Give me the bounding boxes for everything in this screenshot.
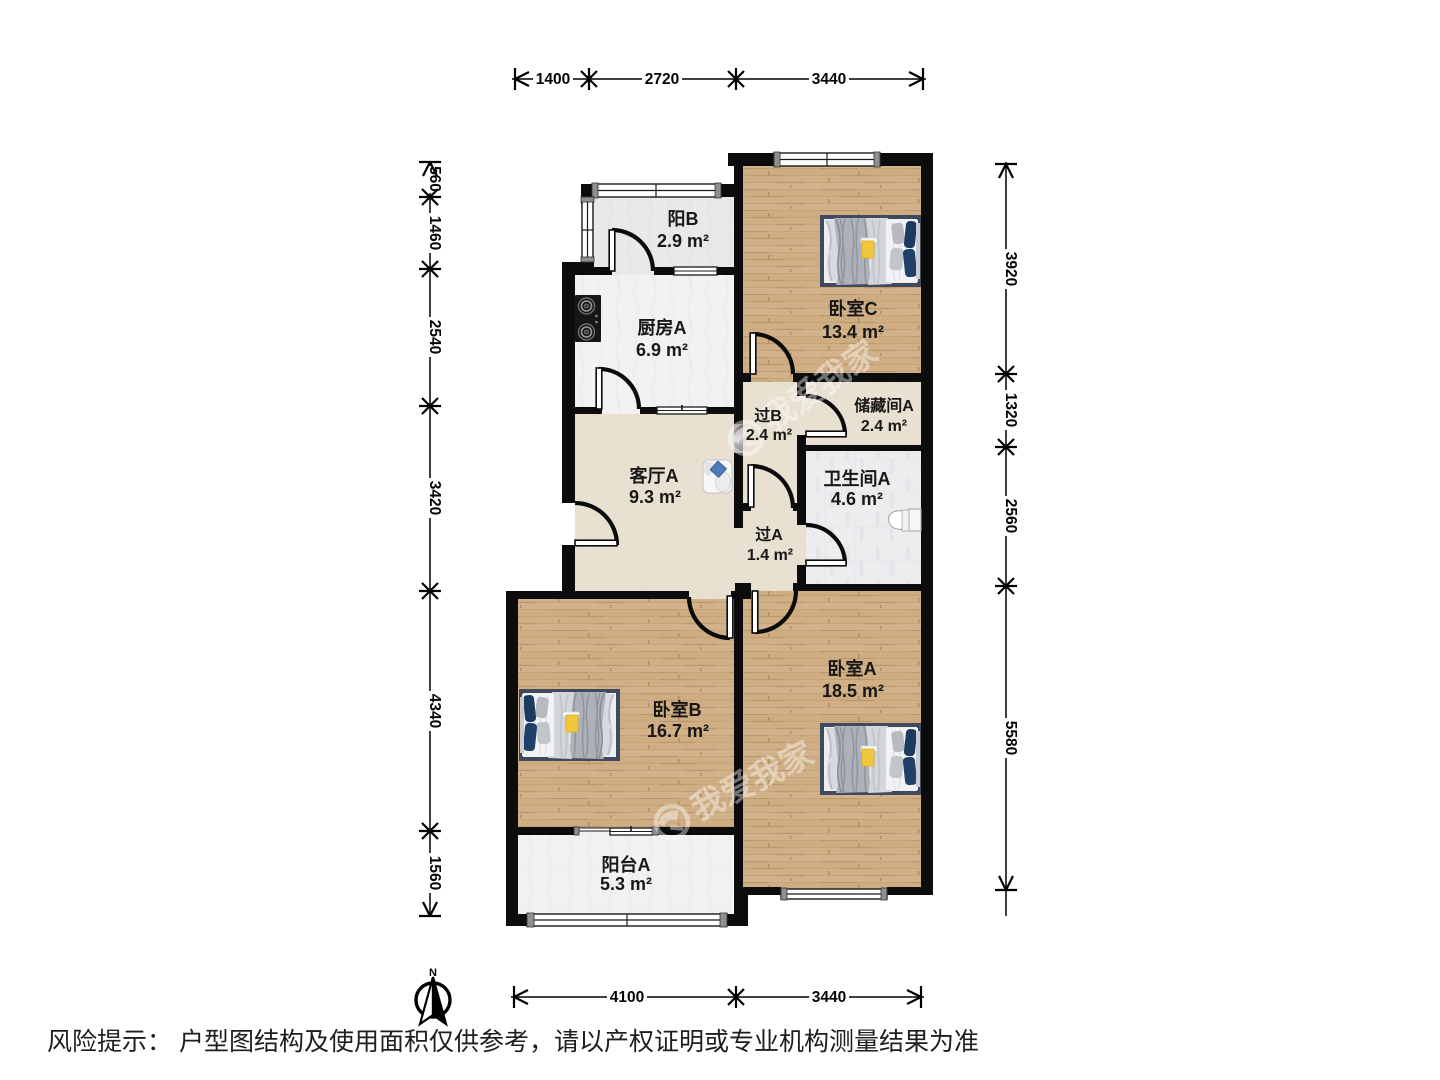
svg-text:阳B: 阳B <box>668 209 699 229</box>
svg-text:过B: 过B <box>754 406 782 425</box>
svg-text:1400: 1400 <box>536 71 570 88</box>
svg-text:卧室C: 卧室C <box>829 298 878 319</box>
svg-text:1.4 m²: 1.4 m² <box>747 547 793 564</box>
svg-text:卫生间A: 卫生间A <box>824 468 891 489</box>
svg-text:储藏间A: 储藏间A <box>853 396 914 415</box>
svg-text:1560: 1560 <box>426 856 443 890</box>
svg-text:4340: 4340 <box>426 694 443 728</box>
svg-text:6.9 m²: 6.9 m² <box>636 340 688 360</box>
svg-text:1460: 1460 <box>426 216 443 250</box>
svg-text:风险提示： 户型图结构及使用面积仅供参考，请以产权证明或专业: 风险提示： 户型图结构及使用面积仅供参考，请以产权证明或专业机构测量结果为准 <box>47 1028 979 1056</box>
svg-text:阳台A: 阳台A <box>602 854 651 875</box>
svg-text:1320: 1320 <box>1002 393 1019 427</box>
svg-text:13.4 m²: 13.4 m² <box>822 322 884 342</box>
svg-text:2.9 m²: 2.9 m² <box>657 231 709 251</box>
svg-text:卧室B: 卧室B <box>653 699 702 720</box>
svg-text:卧室A: 卧室A <box>828 658 877 679</box>
svg-text:2540: 2540 <box>426 320 443 354</box>
svg-text:客厅A: 客厅A <box>630 465 679 486</box>
svg-text:16.7 m²: 16.7 m² <box>647 721 709 741</box>
svg-text:4100: 4100 <box>610 989 644 1006</box>
svg-text:4.6 m²: 4.6 m² <box>831 489 883 509</box>
svg-text:2.4 m²: 2.4 m² <box>746 427 792 444</box>
svg-text:2.4 m²: 2.4 m² <box>861 418 907 435</box>
svg-text:9.3 m²: 9.3 m² <box>629 487 681 507</box>
svg-text:2720: 2720 <box>645 71 679 88</box>
svg-text:3440: 3440 <box>812 989 846 1006</box>
svg-text:5580: 5580 <box>1002 721 1019 755</box>
svg-text:5.3 m²: 5.3 m² <box>600 874 652 894</box>
svg-text:厨房A: 厨房A <box>638 317 687 338</box>
svg-text:过A: 过A <box>755 525 783 544</box>
svg-text:3440: 3440 <box>812 71 846 88</box>
svg-text:3420: 3420 <box>426 481 443 515</box>
svg-text:2560: 2560 <box>1002 499 1019 533</box>
svg-text:3920: 3920 <box>1002 252 1019 286</box>
svg-text:18.5 m²: 18.5 m² <box>822 681 884 701</box>
